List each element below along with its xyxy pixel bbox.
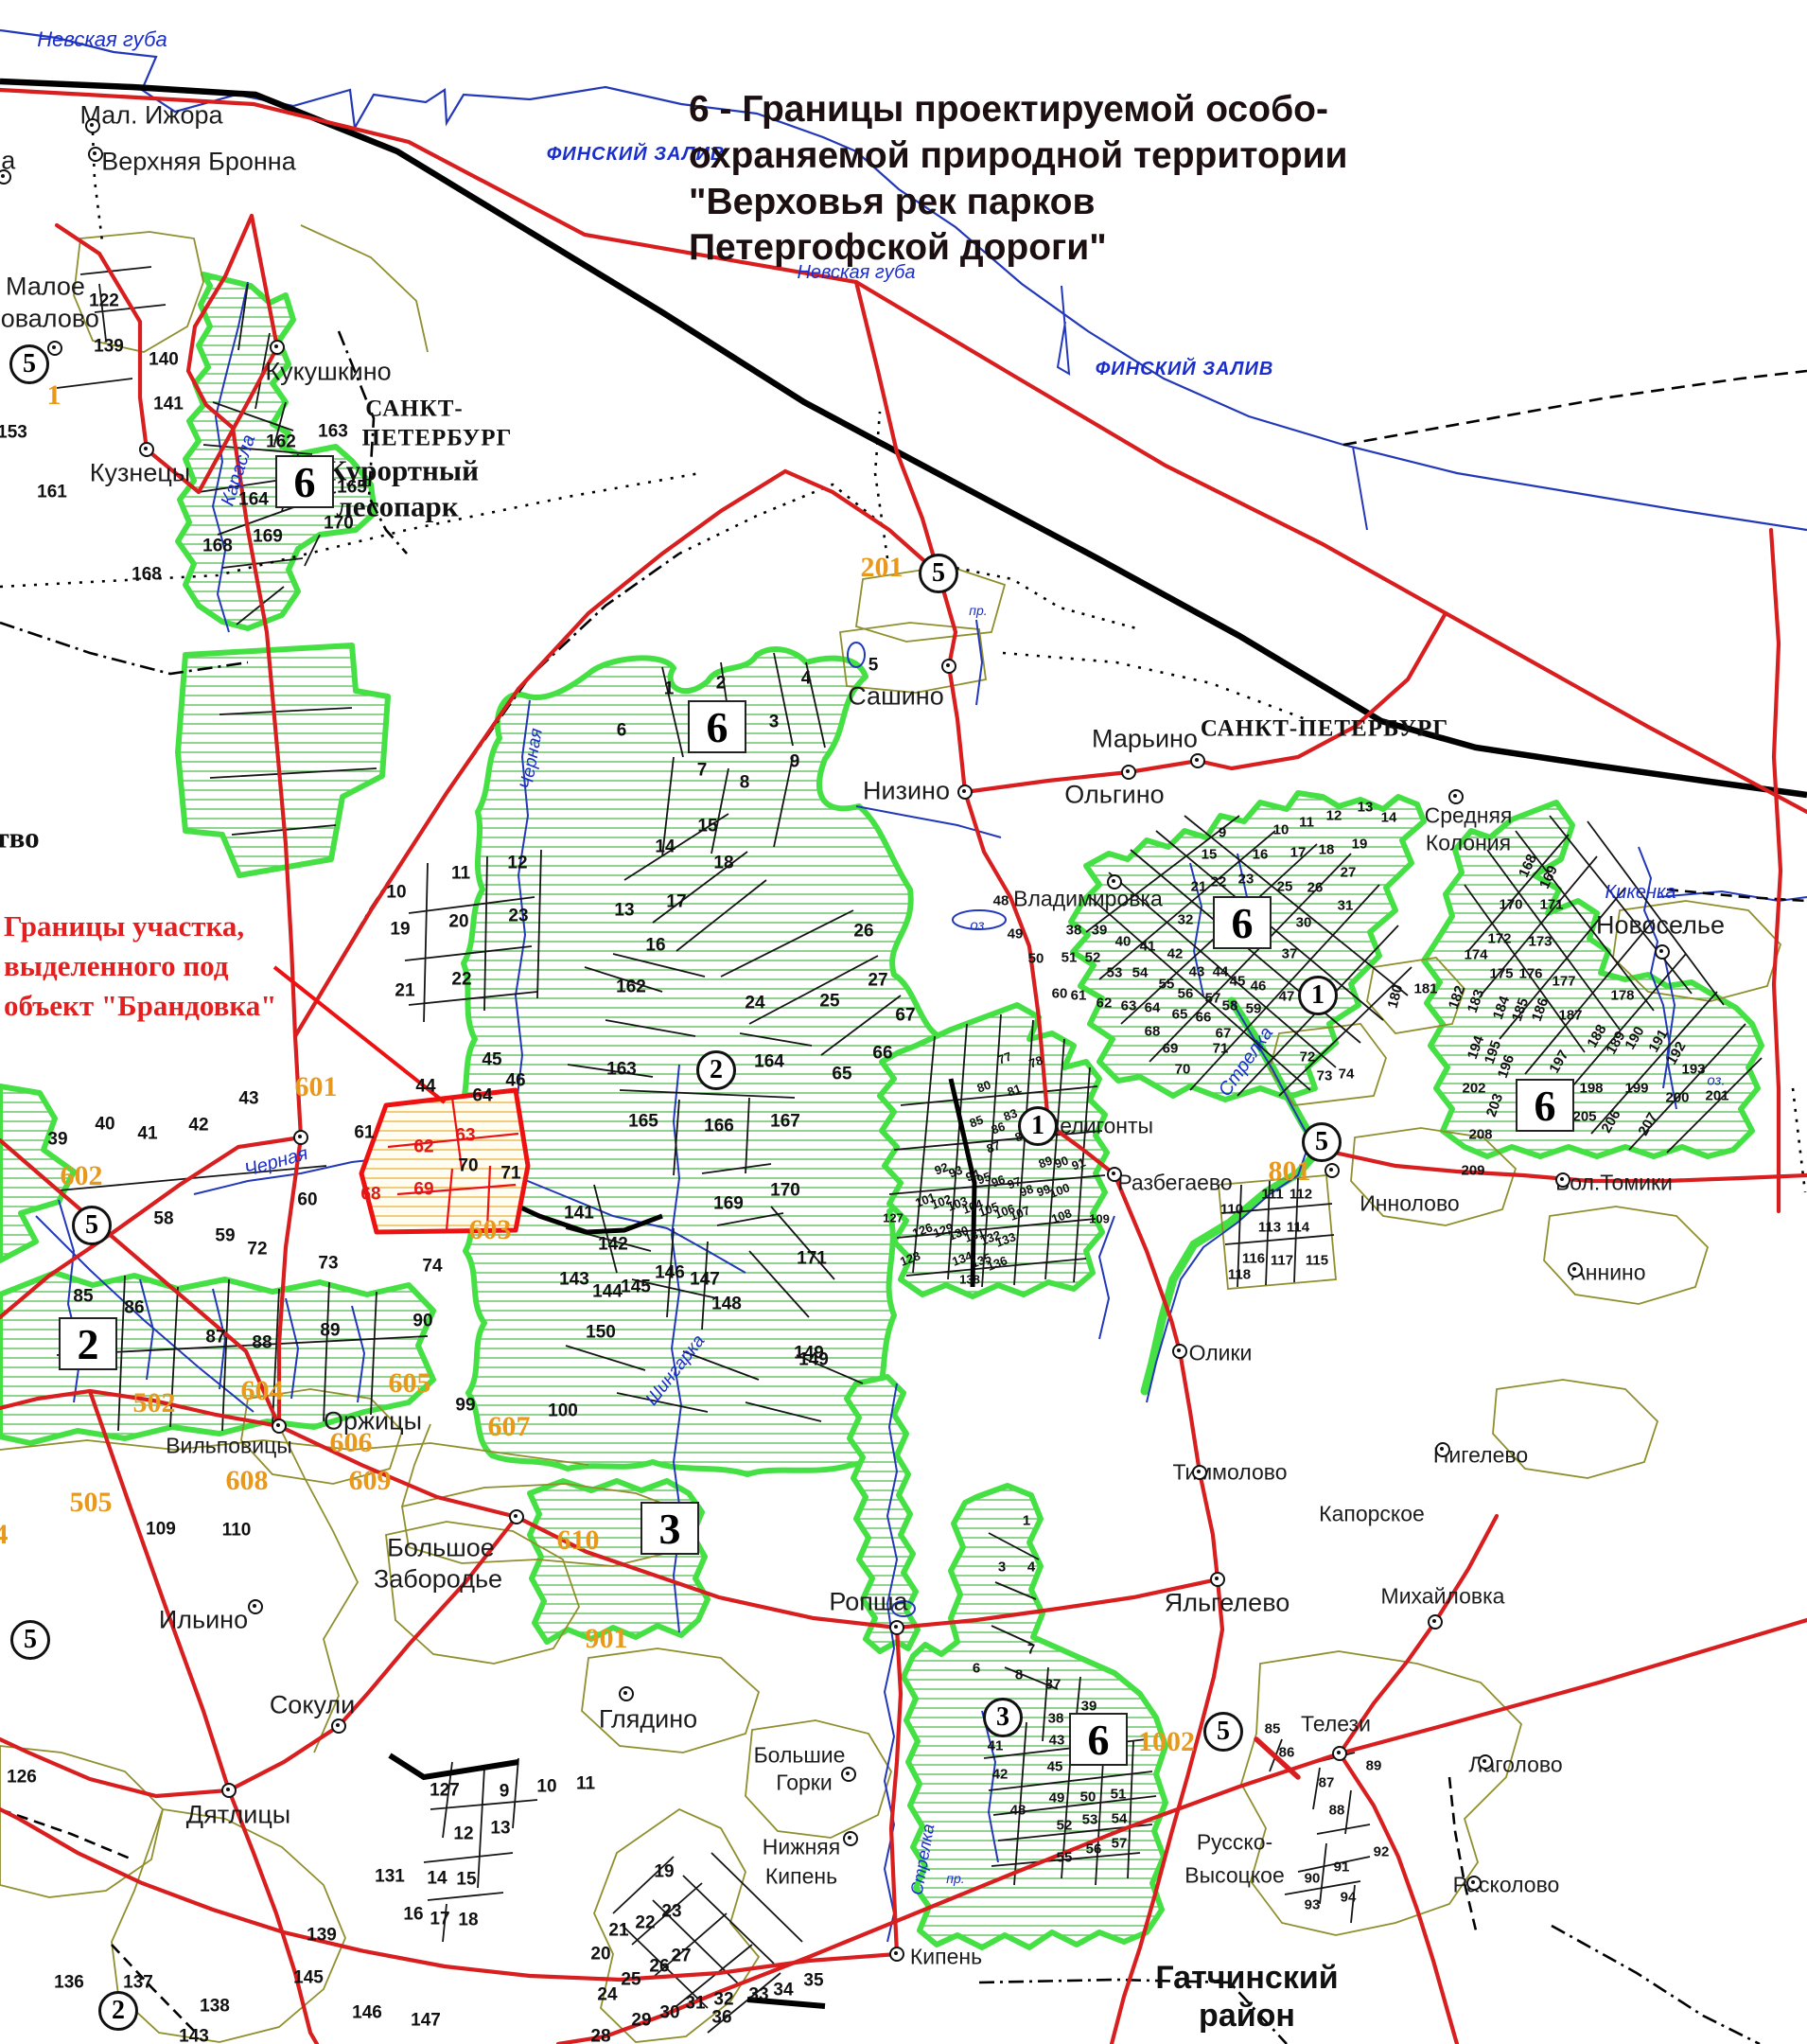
title-line-4: Петергофской дороги": [689, 225, 1348, 272]
title-line-3: "Верховья рек парков: [689, 180, 1348, 226]
forest-ropsha-corridor: [847, 1377, 918, 1651]
forest-central: [459, 649, 946, 1474]
annotation-line-1: Границы участка,: [4, 907, 276, 946]
forest-veligonty: [880, 1005, 1107, 1296]
brandovka-box: [361, 1090, 528, 1232]
annotation-line-3: объект "Брандовка": [4, 986, 276, 1026]
title-line-2: охраняемой природной территории: [689, 133, 1348, 180]
map-stage: 6 - Границы проектируемой особо- охраняе…: [0, 0, 1807, 2044]
annotation-leader: [274, 967, 445, 1102]
forest-kipen: [903, 1486, 1166, 1947]
map-title: 6 - Границы проектируемой особо- охраняе…: [689, 87, 1348, 272]
title-line-1: 6 - Границы проектируемой особо-: [689, 87, 1348, 133]
forest-kurortny-south: [178, 645, 388, 875]
annotation-text: Границы участка, выделенного под объект …: [4, 907, 276, 1026]
forest-vladimirovka: [1071, 793, 1424, 1100]
annotation-line-2: выделенного под: [4, 946, 276, 986]
forest-novoselye: [1424, 802, 1762, 1156]
forest-west: [0, 1273, 433, 1443]
